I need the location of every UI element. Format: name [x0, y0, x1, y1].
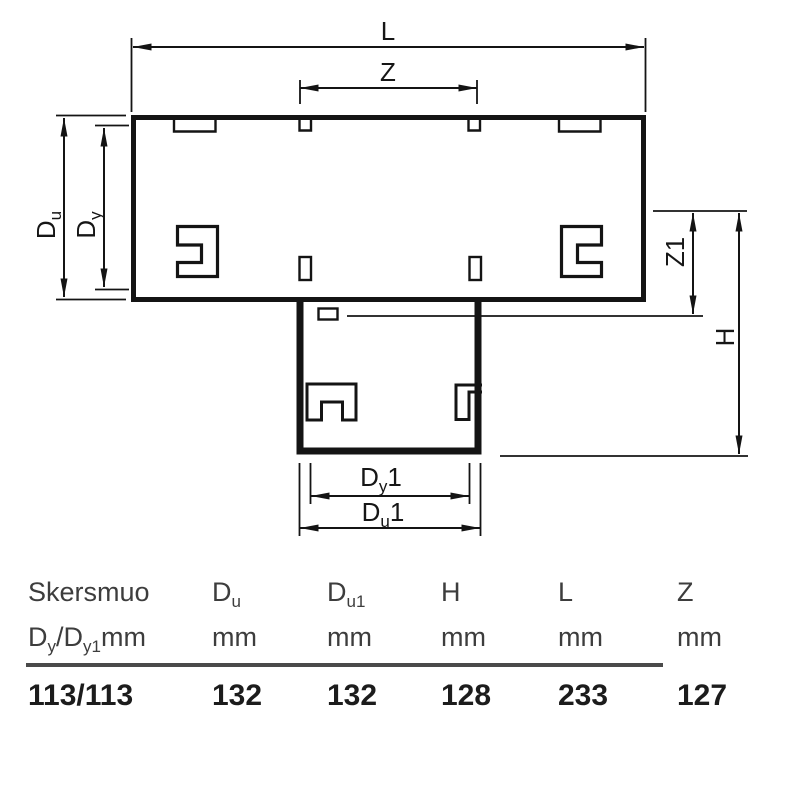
seal-groove-branch-left: [307, 384, 356, 420]
value-z: 127: [677, 679, 727, 713]
socket-mark-branch-top: [319, 309, 338, 320]
col-skersmuo-subheader: Dy/Dy1mm: [28, 621, 150, 663]
col-du1-unit: mm: [327, 621, 377, 663]
value-l: 233: [558, 679, 608, 713]
table-col-du1: Du1 mm 132: [327, 576, 377, 713]
value-du: 132: [212, 679, 262, 713]
table-col-z: Z mm 127: [677, 576, 727, 713]
socket-mark-bottom-left: [300, 257, 312, 280]
dimension-table: Skersmuo Dy/Dy1mm 113/113 Du mm 132 Du1 …: [0, 0, 800, 240]
branch-outlet-outline: [300, 299, 478, 451]
col-z-header: Z: [677, 576, 727, 621]
col-du-header: Du: [212, 576, 262, 621]
dim-label-z1: Z1: [660, 237, 690, 267]
col-z-unit: mm: [677, 621, 727, 663]
col-l-unit: mm: [558, 621, 608, 663]
table-col-du: Du mm 132: [212, 576, 262, 713]
table-col-l: L mm 233: [558, 576, 608, 713]
value-du1: 132: [327, 679, 377, 713]
dim-label-du1: Du1: [362, 497, 405, 531]
table-col-skersmuo: Skersmuo Dy/Dy1mm 113/113: [28, 576, 150, 713]
col-h-header: H: [441, 576, 491, 621]
socket-mark-bottom-right: [470, 257, 482, 280]
col-du1-header: Du1: [327, 576, 377, 621]
col-skersmuo-header: Skersmuo: [28, 576, 150, 621]
technical-drawing-page: L Z Du Dy Z1 H Dy1 Du1 Skersmuo Dy/Dy1mm…: [0, 0, 800, 800]
table-col-h: H mm 128: [441, 576, 491, 713]
table-header-rule: [26, 663, 663, 667]
col-l-header: L: [558, 576, 608, 621]
dim-label-dy1: Dy1: [360, 462, 402, 496]
value-dy-dy1: 113/113: [28, 679, 150, 713]
dim-label-h: H: [710, 328, 740, 347]
col-du-unit: mm: [212, 621, 262, 663]
value-h: 128: [441, 679, 491, 713]
col-h-unit: mm: [441, 621, 491, 663]
